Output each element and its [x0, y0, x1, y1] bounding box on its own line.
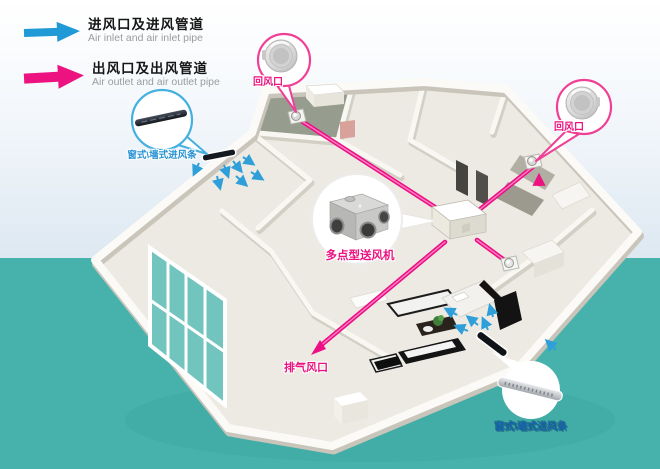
- label-return-air-right: 回风口: [554, 118, 584, 133]
- ventilation-diagram: 进风口及进风管道 Air inlet and air inlet pipe 出风…: [0, 0, 660, 469]
- legend-inlet-zh: 进风口及进风管道: [88, 17, 204, 32]
- ceiling-vent-right: [524, 154, 542, 169]
- interior-door: [340, 120, 355, 139]
- ceiling-vent-top: [288, 109, 306, 124]
- legend-inlet: 进风口及进风管道 Air inlet and air inlet pipe: [88, 17, 204, 45]
- dark-window-slat: [476, 170, 488, 206]
- legend-outlet-en: Air outlet and air outlet pipe: [92, 76, 220, 89]
- label-return-air-top: 回风口: [253, 73, 283, 88]
- legend-outlet: 出风口及出风管道 Air outlet and air outlet pipe: [92, 61, 220, 89]
- label-inlet-strip-bottom: 窗式\墙式进风条: [495, 418, 568, 433]
- label-inlet-strip-left: 窗式\墙式进风条: [127, 147, 196, 161]
- label-exhaust-vent: 排气风口: [284, 359, 328, 375]
- legend-outlet-arrow-icon: [23, 63, 84, 90]
- dark-window-slat: [456, 160, 468, 196]
- legend-inlet-arrow-icon: [24, 21, 81, 43]
- ceiling-vent-bottom-right: [501, 256, 519, 271]
- legend-inlet-en: Air inlet and air inlet pipe: [88, 32, 204, 45]
- roof-box: [306, 84, 344, 107]
- callout-inlet-strip-left: [132, 90, 207, 154]
- label-fan-unit: 多点型送风机: [326, 247, 395, 263]
- legend-outlet-zh: 出风口及出风管道: [92, 61, 220, 76]
